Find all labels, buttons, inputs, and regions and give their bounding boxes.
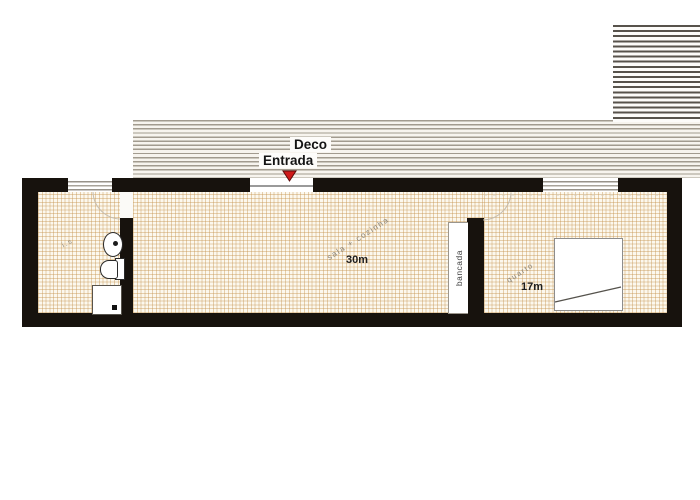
deck-hatch-band	[133, 120, 700, 178]
bed	[554, 238, 623, 311]
bathroom-window	[68, 178, 112, 192]
deck-hatch-block-topright	[613, 25, 700, 122]
kitchen-counter: bancada	[448, 222, 468, 314]
shower-box	[92, 285, 122, 315]
bedroom-door-opening	[467, 192, 484, 218]
floorplan-page: Deco Entrada bancada i.s sala + cozinha …	[0, 0, 700, 500]
toilet-icon	[100, 260, 118, 279]
entrance-label: Entrada	[259, 153, 317, 168]
deck-label: Deco	[290, 137, 331, 152]
bedroom-window	[543, 178, 618, 192]
living-kitchen-area: 30m	[346, 254, 368, 266]
shower-drain-icon	[112, 305, 117, 310]
bedroom-area: 17m	[521, 281, 543, 293]
sink-tap-icon	[113, 241, 118, 246]
counter-label: bancada	[454, 250, 464, 286]
entrance-doorway	[250, 178, 313, 192]
bathroom-door-opening	[120, 192, 133, 218]
living-kitchen-floor	[133, 192, 467, 313]
